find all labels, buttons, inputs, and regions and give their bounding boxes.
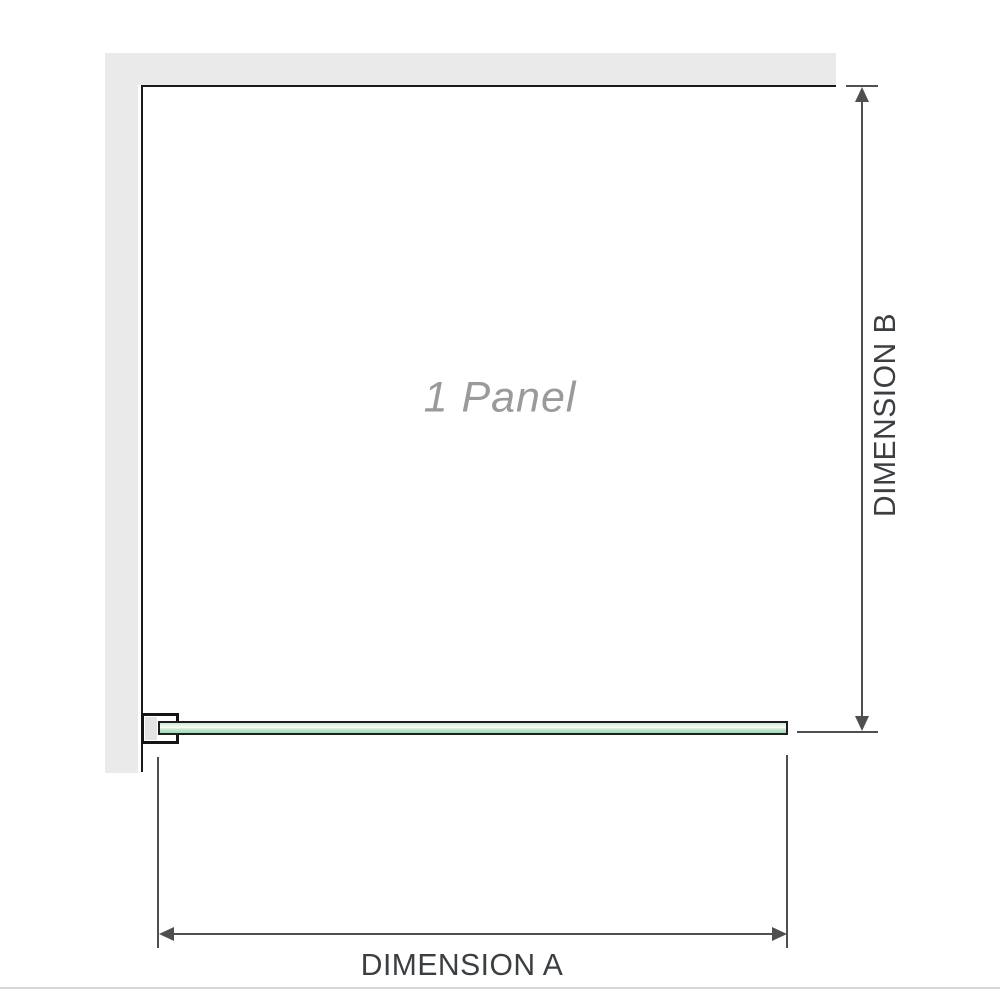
dimension-b-line xyxy=(861,89,863,729)
dimension-a-right-tick xyxy=(786,755,788,948)
wall-left xyxy=(105,53,138,773)
dimension-a-label: DIMENSION A xyxy=(361,947,564,983)
dimension-b-label: DIMENSION B xyxy=(867,313,903,517)
glass-panel xyxy=(158,721,788,735)
bracket-pad xyxy=(145,717,157,740)
arrow-up-icon xyxy=(855,87,869,102)
dimension-b-bottom-tick xyxy=(797,731,878,733)
arrow-down-icon xyxy=(855,716,869,731)
wall-top xyxy=(105,53,836,85)
dimension-a-left-tick xyxy=(157,757,159,948)
arrow-right-icon xyxy=(772,927,787,941)
bottom-divider xyxy=(0,987,1000,989)
dimension-a-line xyxy=(163,933,783,935)
panel-count-label: 1 Panel xyxy=(424,374,577,423)
enclosure-outline xyxy=(141,85,836,772)
arrow-left-icon xyxy=(159,927,174,941)
shower-screen-diagram: 1 Panel DIMENSION B DIMENSION A xyxy=(0,0,1000,1000)
